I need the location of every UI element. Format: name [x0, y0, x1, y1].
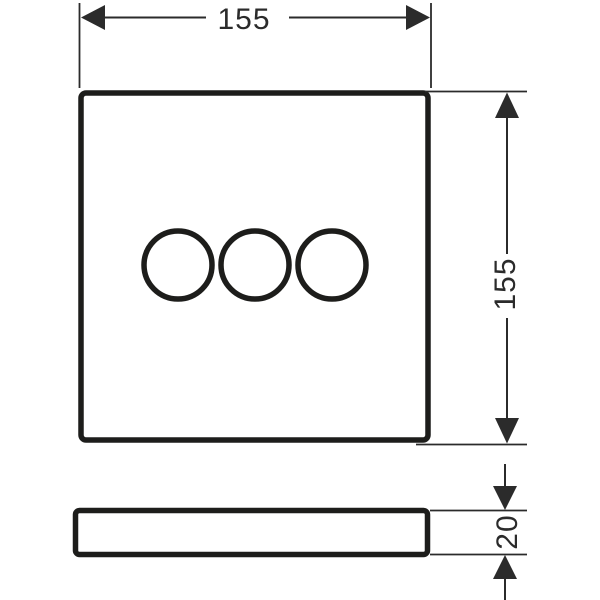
height-dim-arrowhead-top	[495, 93, 519, 119]
side-view-plate-outline	[76, 511, 428, 555]
depth-dim-label: 20	[491, 514, 524, 549]
front-view-plate-outline	[81, 93, 428, 440]
width-dim-arrowhead-left	[81, 5, 105, 30]
technical-drawing-page: 155 155	[0, 0, 600, 600]
height-dimension: 155	[416, 92, 527, 445]
height-dim-label: 155	[489, 257, 522, 310]
side-view	[76, 511, 428, 555]
height-dim-arrowhead-bottom	[495, 418, 519, 444]
depth-dim-arrowhead-bottom	[493, 555, 517, 579]
technical-drawing: 155 155	[0, 0, 600, 600]
front-view	[81, 93, 428, 440]
width-dimension: 155	[80, 3, 432, 88]
depth-dim-arrowhead-top	[493, 486, 517, 510]
depth-dimension: 20	[430, 464, 527, 600]
width-dim-label: 155	[217, 3, 270, 36]
width-dim-arrowhead-right	[406, 5, 430, 30]
